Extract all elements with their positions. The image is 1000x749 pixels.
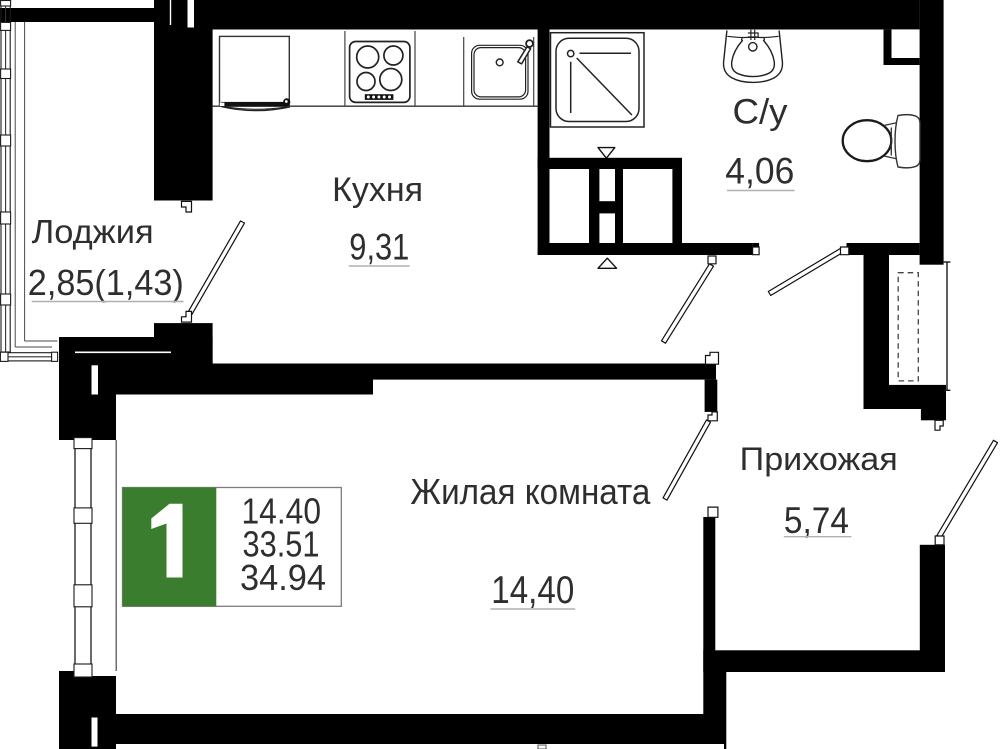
svg-text:Прихожая: Прихожая — [740, 441, 898, 477]
svg-text:Лоджия: Лоджия — [32, 213, 154, 250]
svg-text:Кухня: Кухня — [332, 171, 423, 209]
svg-text:4,06: 4,06 — [725, 151, 794, 192]
svg-text:Жилая комната: Жилая комната — [410, 471, 651, 512]
svg-text:С/у: С/у — [733, 93, 789, 132]
svg-text:14,40: 14,40 — [491, 569, 574, 612]
svg-text:9,31: 9,31 — [349, 227, 409, 268]
svg-text:34.94: 34.94 — [240, 557, 326, 598]
svg-text:5,74: 5,74 — [784, 500, 849, 541]
svg-text:2,85(1,43): 2,85(1,43) — [28, 262, 184, 303]
